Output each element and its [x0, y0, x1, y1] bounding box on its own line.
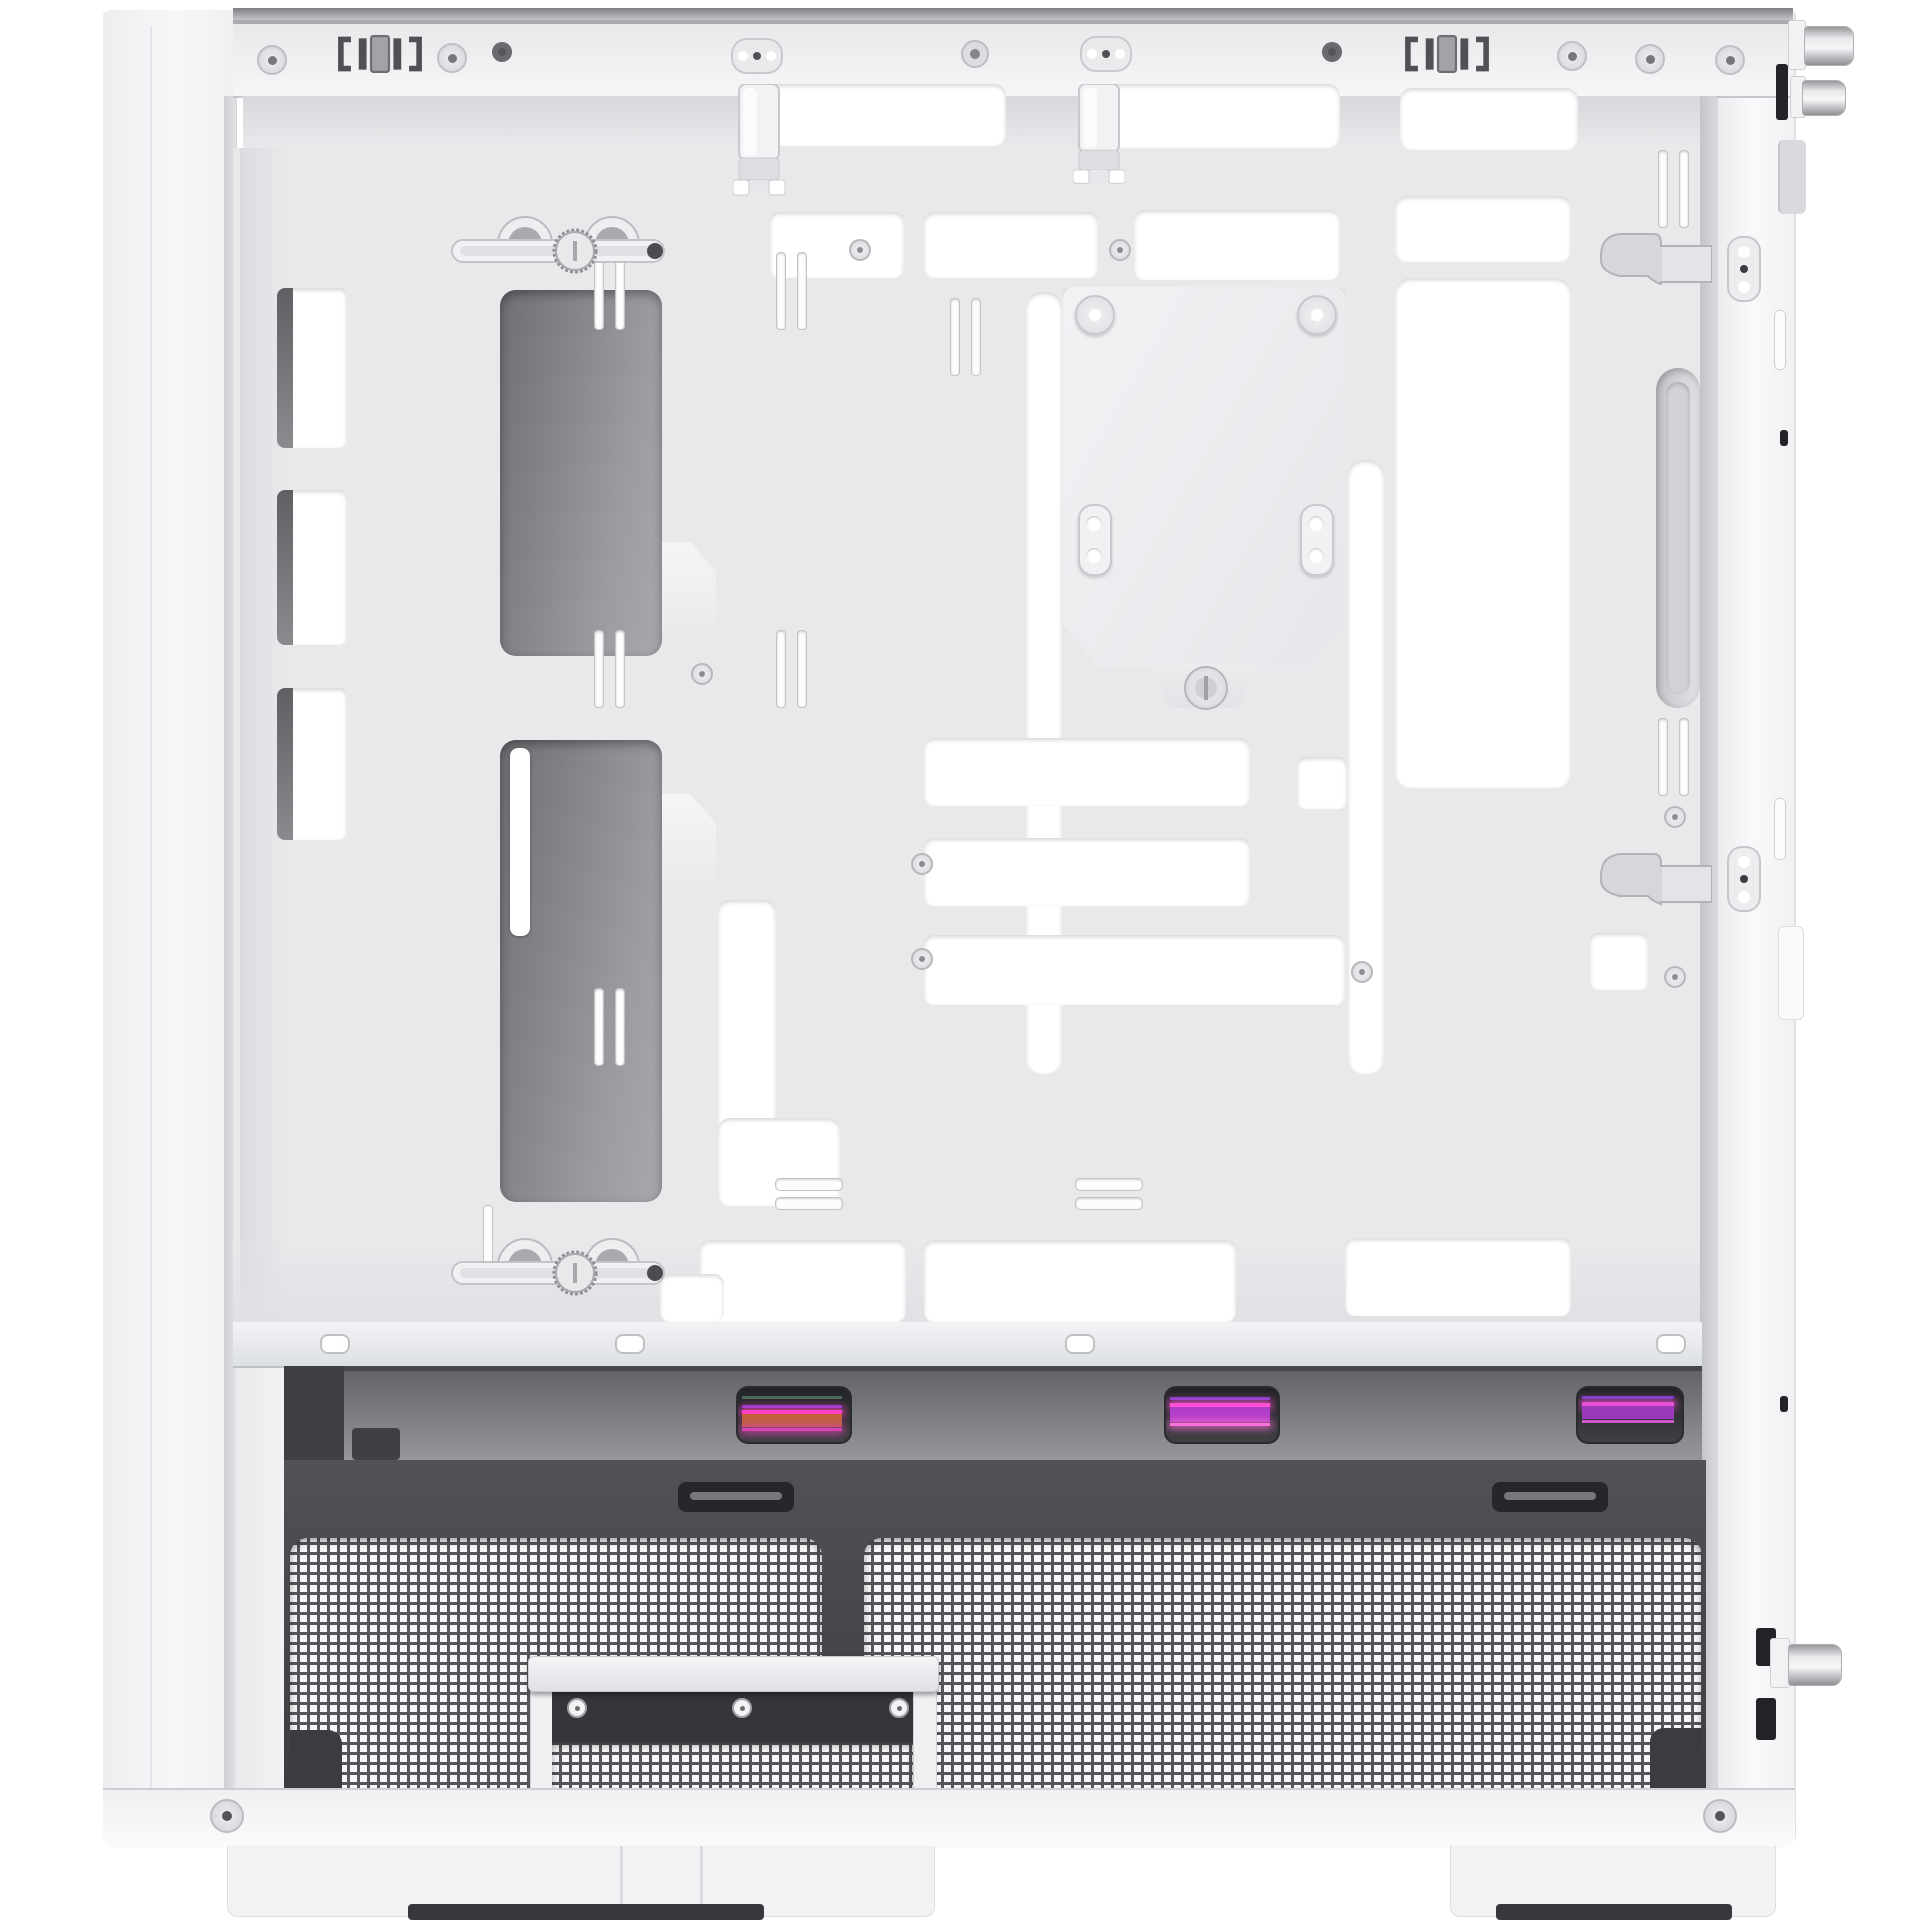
foot-pad-left [408, 1904, 764, 1920]
top-cutout-2 [1094, 84, 1340, 148]
tie-slot-hpair-1-slot-0 [775, 1178, 843, 1191]
rail-dark-hole-1 [492, 42, 512, 62]
rear-pill-plate-2 [1727, 846, 1761, 912]
fan-bracket-bottom [450, 1204, 674, 1296]
rail-ring-hole [961, 40, 989, 68]
rail-oval-plate-1-dot-0 [738, 51, 748, 61]
rear-black-dot-1 [1780, 430, 1788, 446]
cable-hook-1 [733, 84, 785, 198]
tray-screw-3-center [699, 671, 705, 677]
psu-bracket-hole-2 [732, 1698, 752, 1718]
psu-bracket-hole-1 [567, 1698, 587, 1718]
psu-bracket-bar [528, 1656, 939, 1692]
tray-screw-4 [911, 853, 933, 875]
tie-slot-hpair-2 [1075, 1178, 1143, 1210]
ssd-standoff-pill-1 [1078, 504, 1112, 576]
rgb-fan-slot-2-stripe-2 [1170, 1407, 1270, 1422]
rail-screw-5-center [1726, 56, 1735, 65]
fan-bracket-top [450, 182, 674, 274]
tie-slot-pair-8-slot-1 [1679, 718, 1689, 796]
ssd-standoff-pill-2-hole-0 [1308, 516, 1324, 532]
frame-screw-right [1703, 1799, 1737, 1833]
bottom-cutout-2 [924, 1240, 1236, 1322]
tie-slot-pair-5 [776, 630, 805, 708]
tie-slot-pair-3 [950, 298, 979, 376]
tie-slot-pair-5-slot-0 [776, 630, 786, 708]
front-vent-3-shadow-edge [277, 688, 293, 840]
right-cutout-upper [1395, 196, 1571, 262]
tray-screw-2 [1109, 239, 1131, 261]
rgb-fan-slot-3 [1576, 1386, 1684, 1444]
rail-screw-2 [437, 43, 467, 73]
front-vent-2 [277, 490, 347, 645]
tie-slot-hpair-1 [775, 1178, 843, 1210]
tie-slot-pair-7-slot-0 [1658, 150, 1668, 228]
front-vent-3 [277, 688, 347, 840]
rear-black-clip-1 [1776, 64, 1788, 120]
thumbscrew-top-1-cylinder [1804, 26, 1854, 66]
rear-pill-plate-1-dot-0 [1738, 246, 1750, 258]
rear-black-dot-2 [1780, 1396, 1788, 1412]
tie-slot-hpair-2-slot-1 [1075, 1197, 1143, 1210]
top-cutout-3 [1400, 88, 1578, 150]
tray-screw-4-center [919, 861, 925, 867]
rear-gray-tab [1778, 140, 1806, 214]
tie-slot-pair-4 [594, 630, 623, 708]
rear-pill-plate-2-dot-0 [1738, 856, 1750, 868]
rail-screw-1 [257, 45, 287, 75]
psu-shroud-band [344, 1366, 1702, 1460]
tie-slot-pair-6 [594, 988, 623, 1066]
tie-slot-pair-6-slot-0 [594, 988, 604, 1066]
ssd-standoff-pill-1-hole-1 [1086, 548, 1102, 564]
top-edge-strip [233, 8, 1793, 20]
thumbscrew-bottom-cap [1770, 1638, 1790, 1688]
tie-slot-pair-4-slot-0 [594, 630, 604, 708]
tray-screw-7-center [1672, 814, 1678, 820]
front-vent-1-shadow-edge [277, 288, 293, 448]
mid-cutout-1 [924, 738, 1250, 806]
psu-bracket-window-dark [552, 1690, 913, 1742]
tray-screw-5-center [919, 956, 925, 962]
tray-screw-8-center [1672, 974, 1678, 980]
psu-bracket-hole-3-center [897, 1706, 902, 1711]
tie-slot-pair-5-slot-1 [797, 630, 807, 708]
rear-pill-plate-2-dot-1 [1740, 875, 1748, 883]
top-cutout-1 [760, 84, 1006, 146]
bottom-cutout-3 [1345, 1238, 1571, 1316]
rail-oval-plate-2 [1080, 36, 1132, 72]
rail-screw-4 [1635, 44, 1665, 74]
tray-screw-6-center [1359, 969, 1365, 975]
psu-bracket-hole-2-center [740, 1706, 745, 1711]
tie-slot-pair-7-slot-1 [1679, 150, 1689, 228]
mid-cutout-3 [924, 935, 1345, 1005]
filter-handle-1 [678, 1482, 794, 1512]
rail-screw-3 [1557, 41, 1587, 71]
rear-outline-slot-2 [1774, 798, 1786, 860]
tray-screw-8 [1664, 966, 1686, 988]
ssd-standoff-pill-1-hole-0 [1086, 516, 1102, 532]
tie-slot-pair-8-slot-0 [1658, 718, 1668, 796]
rail-ring-hole-center [970, 49, 980, 59]
filter-handle-2 [1492, 1482, 1608, 1512]
rail-oval-hole-1 [320, 1334, 350, 1354]
rail-screw-4-center [1646, 55, 1655, 64]
rgb-fan-slot-1-stripe-3 [742, 1414, 842, 1427]
tie-slot-pair-2-slot-1 [797, 252, 807, 330]
rgb-fan-slot-3-stripe-2 [1582, 1406, 1674, 1419]
rail-screw-2-center [448, 54, 457, 63]
rail-oval-plate-1-dot-2 [766, 51, 776, 61]
tie-slot-hpair-2-slot-0 [1075, 1178, 1143, 1191]
rail-screw-1-center [268, 56, 277, 65]
rear-hook-1 [1598, 226, 1714, 288]
tie-slot-pair-4-slot-1 [615, 630, 625, 708]
rgb-fan-slot-2-stripe-0 [1170, 1397, 1270, 1400]
front-panel-seam [150, 26, 152, 1822]
frame-screw-left-center [222, 1811, 232, 1821]
psu-bracket-hole-1-center [575, 1706, 580, 1711]
tie-slot-pair-3-slot-1 [971, 298, 981, 376]
filter-handle-1-grip [690, 1492, 782, 1500]
tie-slot-pair-3-slot-0 [950, 298, 960, 376]
rgb-fan-slot-2-stripe-3 [1170, 1423, 1270, 1426]
rail-oval-hole-3 [1065, 1334, 1095, 1354]
tray-screw-1 [849, 239, 871, 261]
tie-slot-pair-2 [776, 252, 805, 330]
rail-oval-plate-1-dot-1 [753, 52, 761, 60]
tray-bottom-rail [233, 1322, 1702, 1368]
row2-cutout-3 [1134, 210, 1340, 280]
ssd-thumbscrew [1184, 666, 1228, 710]
ssd-thumbscrew-slot [1204, 676, 1208, 700]
rear-pill-plate-2-dot-2 [1738, 891, 1750, 903]
tie-slot-pair-6-slot-1 [615, 988, 625, 1066]
rgb-fan-slot-3-stripe-0 [1582, 1396, 1674, 1399]
bottom-cutout-1 [700, 1240, 906, 1322]
rail-screw-5 [1715, 45, 1745, 75]
frame-screw-right-center [1715, 1811, 1725, 1821]
rail-oval-plate-2-dot-0 [1087, 49, 1097, 59]
rail-dark-hole-1-center [498, 48, 506, 56]
front-panel-inner-face [235, 1326, 285, 1788]
tray-screw-6 [1351, 961, 1373, 983]
tray-screw-2-center [1117, 247, 1123, 253]
ssd-standoff-round-1-center [1089, 309, 1101, 321]
small-square-cutout-1 [1297, 757, 1347, 809]
front-panel-column [103, 10, 237, 1842]
foot-pad-right [1496, 1904, 1732, 1920]
rgb-fan-slot-1-stripe-0 [742, 1396, 842, 1399]
rail-tie-slot-1 [330, 35, 430, 73]
ssd-standoff-pill-2-hole-1 [1308, 548, 1324, 564]
front-vent-2-shadow-edge [277, 490, 293, 645]
row2-cutout-2 [924, 212, 1098, 278]
frame-screw-left [210, 1799, 244, 1833]
rail-oval-plate-2-dot-1 [1102, 50, 1110, 58]
ssd-bracket-plate [1063, 287, 1345, 667]
mid-cutout-2 [924, 838, 1250, 906]
rgb-fan-slot-3-stripe-3 [1582, 1420, 1674, 1423]
pc-case-photo [0, 0, 1920, 1920]
tie-slot-pair-8 [1658, 718, 1687, 796]
tray-screw-5 [911, 948, 933, 970]
rail-tie-slot-2 [1397, 35, 1497, 73]
cable-hook-2 [1073, 84, 1125, 186]
bottom-frame [103, 1788, 1795, 1848]
rail-screw-3-center [1568, 52, 1577, 61]
psu-bracket-hole-3 [889, 1698, 909, 1718]
rail-oval-plate-1 [731, 38, 783, 74]
rail-oval-plate-2-dot-2 [1115, 49, 1125, 59]
rail-dark-hole-2-center [1328, 48, 1336, 56]
rail-oval-hole-4 [1656, 1334, 1686, 1354]
rgb-fan-slot-1 [736, 1386, 852, 1444]
rear-pill-plate-1-dot-2 [1738, 281, 1750, 293]
rear-white-tab [1778, 926, 1804, 1020]
rear-fan-channel-slot [1666, 382, 1690, 694]
ssd-standoff-round-2 [1297, 295, 1337, 335]
shroud-notch [352, 1428, 400, 1460]
rear-pill-plate-1 [1727, 236, 1761, 302]
thumbscrew-bottom-cylinder [1788, 1644, 1842, 1686]
small-square-cutout-2 [1590, 933, 1648, 990]
tray-screw-3 [691, 663, 713, 685]
tray-screw-1-center [857, 247, 863, 253]
filter-handle-2-grip [1504, 1492, 1596, 1500]
right-cutout-tall [1395, 278, 1571, 788]
ssd-standoff-round-2-center [1311, 309, 1323, 321]
cable-channel-1 [500, 290, 662, 656]
rear-hook-2 [1598, 846, 1714, 908]
rgb-fan-slot-2 [1164, 1386, 1280, 1444]
tie-slot-hpair-1-slot-1 [775, 1197, 843, 1210]
mesh-filter-panel-2 [864, 1538, 1702, 1802]
rear-pill-plate-1-dot-1 [1740, 265, 1748, 273]
ssd-standoff-round-1 [1075, 295, 1115, 335]
front-vent-1 [277, 288, 347, 448]
shroud-left-dark [284, 1366, 344, 1460]
thumbscrew-top-2-cylinder [1802, 80, 1846, 116]
rear-black-clip-3 [1756, 1698, 1776, 1740]
rail-oval-hole-2 [615, 1334, 645, 1354]
shroud-top-line [344, 1366, 1702, 1371]
rail-dark-hole-2 [1322, 42, 1342, 62]
tie-slot-pair-2-slot-0 [776, 252, 786, 330]
ssd-standoff-pill-2 [1300, 504, 1334, 576]
rgb-fan-slot-1-stripe-4 [742, 1428, 842, 1431]
tray-screw-7 [1664, 806, 1686, 828]
rgb-fan-slot-1-stripe-1 [742, 1405, 842, 1408]
rear-outline-slot-1 [1774, 310, 1786, 370]
tie-slot-pair-7 [1658, 150, 1687, 228]
channel2-bar [510, 748, 530, 936]
